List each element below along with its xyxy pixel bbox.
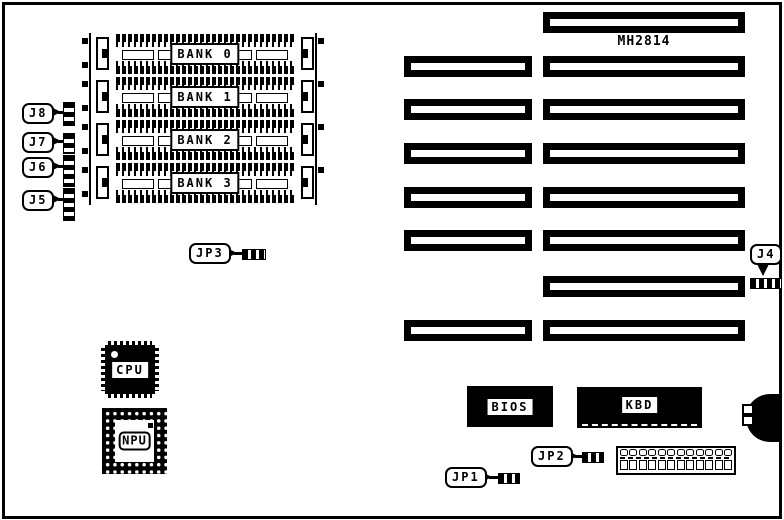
- pin-header-j7: [63, 133, 75, 154]
- connector-cell: [705, 460, 713, 470]
- connector-cell: [677, 460, 685, 470]
- connector-pad: [677, 449, 685, 456]
- simm-rail-tab: [82, 62, 88, 68]
- simm-rail-tab: [82, 148, 88, 154]
- connector-pad: [658, 449, 666, 456]
- connector-cell: [658, 460, 666, 470]
- simm-rail-right: [315, 33, 317, 205]
- simm-rail-tab: [318, 81, 324, 87]
- connector-pad: [724, 449, 732, 456]
- simm-clip: [96, 80, 109, 113]
- connector-pad: [705, 449, 713, 456]
- memory-bank-1: BANK 1: [96, 77, 314, 117]
- connector-pad: [715, 449, 723, 456]
- simm-rail-tab: [318, 124, 324, 130]
- expansion-slot: [404, 187, 532, 208]
- simm-body: [256, 50, 288, 60]
- jumper-label-j5: J5: [22, 190, 54, 211]
- expansion-slot: [404, 230, 532, 251]
- expansion-slot: [543, 99, 745, 120]
- memory-bank-2: BANK 2: [96, 120, 314, 160]
- power-connector: [616, 446, 736, 475]
- simm-body: [122, 93, 154, 103]
- kbd-pin-row: [582, 424, 697, 426]
- callout-pointer: [757, 264, 769, 276]
- simm-body: [256, 93, 288, 103]
- pin-header-j6: [63, 155, 75, 187]
- connector-cell: [724, 460, 732, 470]
- power-connector-cells: [618, 459, 734, 471]
- simm-rail-tab: [82, 191, 88, 197]
- pin-header-j5: [63, 188, 75, 221]
- bank-label: BANK 3: [170, 172, 239, 194]
- bank-label: BANK 0: [170, 43, 239, 65]
- simm-clip: [96, 166, 109, 199]
- simm-clip: [301, 37, 314, 70]
- pin-header-jp1: [498, 473, 520, 484]
- expansion-slot: [404, 143, 532, 164]
- expansion-slot: [543, 276, 745, 297]
- expansion-slot: [543, 230, 745, 251]
- connector-pad: [667, 449, 675, 456]
- bank-label: BANK 2: [170, 129, 239, 151]
- connector-cell: [696, 460, 704, 470]
- din-notch: [742, 415, 754, 426]
- cpu-chip: CPU: [101, 341, 159, 398]
- simm-rail-tab: [82, 38, 88, 44]
- simm-rail-tab: [82, 105, 88, 111]
- npu-socket: NPU: [102, 408, 167, 474]
- bank-label: BANK 1: [170, 86, 239, 108]
- simm-rail-tab: [318, 38, 324, 44]
- simm-clip: [96, 123, 109, 156]
- jumper-label-j4: J4: [750, 244, 782, 265]
- din-notch: [742, 404, 754, 415]
- simm-clip: [96, 37, 109, 70]
- simm-clip: [301, 123, 314, 156]
- connector-cell: [620, 460, 628, 470]
- simm-rail-tab: [318, 167, 324, 173]
- npu-label: NPU: [118, 432, 151, 451]
- pin-header-j4: [750, 278, 782, 289]
- connector-pad: [639, 449, 647, 456]
- simm-body: [122, 179, 154, 189]
- connector-pad: [696, 449, 704, 456]
- jumper-label-j7: J7: [22, 132, 54, 153]
- bios-chip: BIOS: [467, 386, 553, 427]
- jumper-label-jp1: JP1: [445, 467, 487, 488]
- simm-rail-tab: [82, 81, 88, 87]
- expansion-slot: [543, 143, 745, 164]
- expansion-slot: [543, 56, 745, 77]
- connector-cell: [686, 460, 694, 470]
- power-connector-pads: [618, 448, 734, 457]
- kbd-label: KBD: [622, 397, 658, 413]
- connector-pad: [620, 449, 628, 456]
- jumper-label-j8: J8: [22, 103, 54, 124]
- memory-bank-3: BANK 3: [96, 163, 314, 203]
- pin-header-j8: [63, 102, 75, 126]
- cpu-pin1-dot: [111, 351, 118, 358]
- jumper-label-jp3: JP3: [189, 243, 231, 264]
- expansion-slot: [543, 12, 745, 33]
- simm-rail-tab: [82, 167, 88, 173]
- pin-header-jp2: [582, 452, 604, 463]
- simm-rail-left: [89, 33, 91, 205]
- simm-body: [256, 136, 288, 146]
- connector-cell: [629, 460, 637, 470]
- bios-label: BIOS: [488, 399, 533, 415]
- connector-cell: [639, 460, 647, 470]
- connector-pad: [686, 449, 694, 456]
- simm-body: [256, 179, 288, 189]
- expansion-slot: [543, 320, 745, 341]
- expansion-slot: [404, 56, 532, 77]
- jumper-label-jp2: JP2: [531, 446, 573, 467]
- simm-rail-tab: [82, 124, 88, 130]
- pin-header-jp3: [242, 249, 266, 260]
- expansion-slot: [404, 320, 532, 341]
- memory-bank-0: BANK 0: [96, 34, 314, 74]
- npu-pin1-dot: [148, 423, 153, 428]
- connector-cell: [648, 460, 656, 470]
- simm-clip: [301, 166, 314, 199]
- connector-pad: [648, 449, 656, 456]
- connector-cell: [715, 460, 723, 470]
- simm-body: [122, 136, 154, 146]
- cpu-label: CPU: [112, 362, 148, 378]
- expansion-slot: [543, 187, 745, 208]
- board-part-number: MH2814: [543, 34, 745, 49]
- simm-clip: [301, 80, 314, 113]
- keyboard-controller-chip: KBD: [577, 387, 702, 428]
- connector-pad: [629, 449, 637, 456]
- expansion-slot: [404, 99, 532, 120]
- jumper-label-j6: J6: [22, 157, 54, 178]
- connector-cell: [667, 460, 675, 470]
- simm-body: [122, 50, 154, 60]
